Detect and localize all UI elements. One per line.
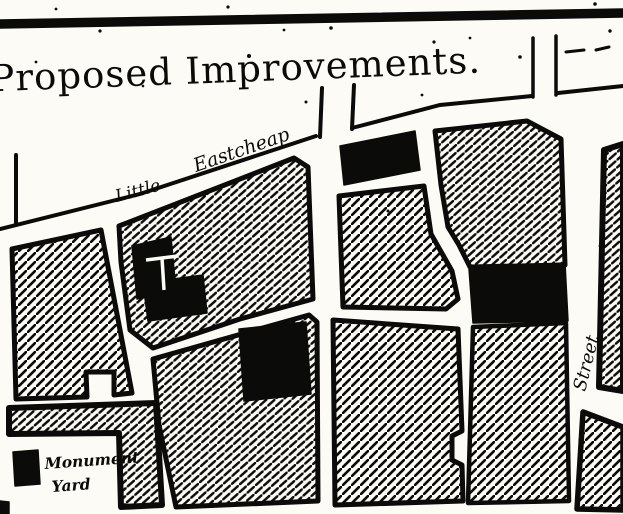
city-block-south-east xyxy=(333,320,463,505)
map-canvas: Proposed Improvements. Little Eastcheap … xyxy=(0,0,623,514)
city-block-right-strip xyxy=(599,144,623,391)
street-edge-line xyxy=(320,88,322,137)
building-band-east xyxy=(469,263,568,323)
city-block-east-lower xyxy=(468,323,569,503)
street-label-little: Little xyxy=(112,176,162,207)
legend-label-yard: Yard xyxy=(51,474,91,496)
street-edge-line xyxy=(352,85,354,129)
street-edge-line xyxy=(558,86,623,93)
city-block-northeast xyxy=(435,121,565,267)
city-block-bottom-right xyxy=(577,412,623,510)
building-block-north xyxy=(340,131,420,185)
church-building xyxy=(143,275,207,321)
city-block-center-north xyxy=(339,186,458,309)
church-cross-mark xyxy=(162,258,164,290)
proposed-improvements-map: Proposed Improvements. Little Eastcheap … xyxy=(0,0,623,514)
map-title: Proposed Improvements. xyxy=(0,39,482,101)
street-edge-line xyxy=(596,47,609,50)
street-edge-line xyxy=(566,50,584,52)
monument-marker xyxy=(13,450,40,486)
map-top-border xyxy=(0,9,623,28)
city-block-west xyxy=(12,230,132,399)
corner-ink-mark xyxy=(0,501,9,514)
building-block-center xyxy=(239,322,311,401)
